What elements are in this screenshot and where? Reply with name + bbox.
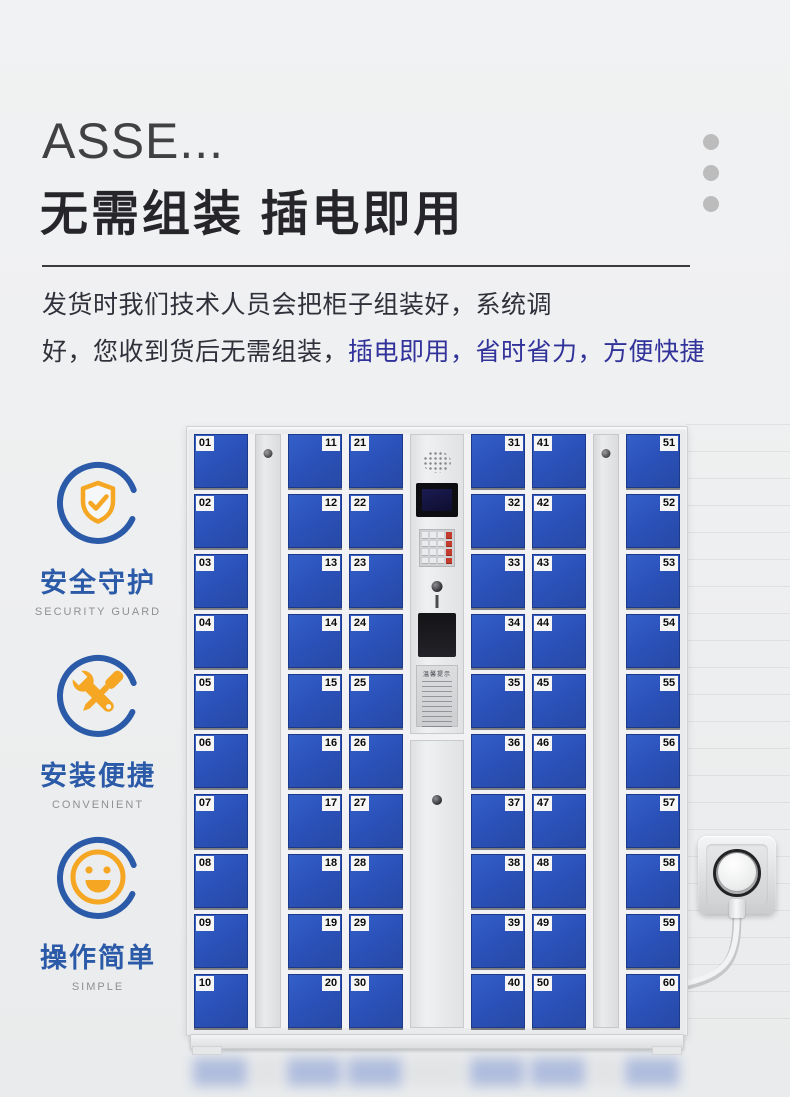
door-number-label: 40 [505,976,523,991]
keypad-key [446,532,452,539]
locker-cell: 38 [471,854,525,908]
door-number-label: 37 [505,796,523,811]
door-number-label: 36 [505,736,523,751]
feature-installation: 安装便捷 CONVENIENT [18,648,178,811]
locker-cell: 48 [532,854,586,908]
locker-cell: 10 [194,974,248,1028]
keypad-key [446,558,452,565]
door-number-label: 49 [534,916,552,931]
panel-lock-icon [432,581,443,592]
locker-cell: 23 [349,554,403,608]
door-column: 31323334353637383940 [471,434,525,1028]
dot [703,165,719,181]
dot [703,196,719,212]
locker-door-06: 06 [194,734,248,788]
locker-door-53: 53 [626,554,680,608]
sticker-text-lines [422,681,452,727]
locker-cell: 07 [194,794,248,848]
locker-door-49: 49 [532,914,586,968]
feature-label: 安装便捷 [18,754,178,793]
drop-slot [418,613,456,657]
headline-english: ASSE... [42,112,224,170]
door-number-label: 08 [196,856,214,871]
locker-door-29: 29 [349,914,403,968]
locker-cell: 56 [626,734,680,788]
locker-cell: 26 [349,734,403,788]
locker-cell: 49 [532,914,586,968]
locker-cell: 44 [532,614,586,668]
locker-door-09: 09 [194,914,248,968]
door-number-label: 48 [534,856,552,871]
locker-cell: 46 [532,734,586,788]
keypad [419,529,455,567]
control-column: 温馨提示 [410,434,464,1028]
locker-cell: 40 [471,974,525,1028]
control-lower-door [410,740,464,1028]
reflection-block [592,1058,618,1086]
locker-door-26: 26 [349,734,403,788]
locker-door-46: 46 [532,734,586,788]
locker-cell: 11 [288,434,342,488]
locker-door-17: 17 [288,794,342,848]
locker-cell: 18 [288,854,342,908]
door-number-label: 01 [196,436,214,451]
door-number-label: 51 [660,436,678,451]
locker-cell: 35 [471,674,525,728]
locker-cell: 01 [194,434,248,488]
locker-cell: 32 [471,494,525,548]
keypad-key [422,558,428,565]
door-number-label: 17 [322,796,340,811]
locker-cell: 30 [349,974,403,1028]
locker-cell: 24 [349,614,403,668]
keypad-key [438,549,444,556]
locker-door-55: 55 [626,674,680,728]
locker-door-37: 37 [471,794,525,848]
locker-door-14: 14 [288,614,342,668]
locker-door-20: 20 [288,974,342,1028]
door-number-label: 47 [534,796,552,811]
door-number-label: 06 [196,736,214,751]
feature-sublabel: CONVENIENT [18,799,178,811]
door-number-label: 29 [351,916,369,931]
locker-cell: 51 [626,434,680,488]
locker-cell: 20 [288,974,342,1028]
locker-door-01: 01 [194,434,248,488]
locker-door-50: 50 [532,974,586,1028]
power-plug-body [729,899,745,918]
locker-door-56: 56 [626,734,680,788]
locker-cell: 55 [626,674,680,728]
info-sticker: 温馨提示 [416,665,458,727]
door-number-label: 33 [505,556,523,571]
locker-door-33: 33 [471,554,525,608]
locker-door-04: 04 [194,614,248,668]
locker-cell: 58 [626,854,680,908]
door-number-label: 52 [660,496,678,511]
door-number-label: 31 [505,436,523,451]
feature-label: 操作简单 [18,936,178,975]
locker-door-38: 38 [471,854,525,908]
reflection-block [470,1058,524,1086]
locker-door-05: 05 [194,674,248,728]
hinge-strip [593,434,619,1028]
locker-door-48: 48 [532,854,586,908]
locker-cell: 33 [471,554,525,608]
locker-cell: 59 [626,914,680,968]
locker-door-32: 32 [471,494,525,548]
keypad-key [430,541,436,548]
reflection-block [254,1058,280,1086]
locker-door-25: 25 [349,674,403,728]
cabinet-foot-right [652,1046,682,1055]
door-number-label: 23 [351,556,369,571]
locker-door-23: 23 [349,554,403,608]
locker-door-12: 12 [288,494,342,548]
wrench-screwdriver-icon [50,648,146,744]
door-number-label: 42 [534,496,552,511]
door-number-label: 25 [351,676,369,691]
locker-cell: 21 [349,434,403,488]
reflection-block [287,1058,341,1086]
locker-cell: 42 [532,494,586,548]
door-number-label: 39 [505,916,523,931]
keypad-key [430,532,436,539]
locker-cell: 43 [532,554,586,608]
locker-cell: 19 [288,914,342,968]
door-number-label: 43 [534,556,552,571]
door-number-label: 41 [534,436,552,451]
keyhole-icon [432,795,442,805]
locker-door-44: 44 [532,614,586,668]
keypad-key [430,549,436,556]
keypad-key [446,541,452,548]
door-number-label: 14 [322,616,340,631]
reflection-block [531,1058,585,1086]
locker-door-16: 16 [288,734,342,788]
locker-door-08: 08 [194,854,248,908]
locker-cell: 06 [194,734,248,788]
locker-door-36: 36 [471,734,525,788]
locker-door-15: 15 [288,674,342,728]
door-number-label: 22 [351,496,369,511]
locker-door-19: 19 [288,914,342,968]
dot [703,134,719,150]
door-number-label: 59 [660,916,678,931]
door-number-label: 45 [534,676,552,691]
feature-sublabel: SIMPLE [18,981,178,993]
locker-door-28: 28 [349,854,403,908]
door-number-label: 19 [322,916,340,931]
description-paragraph: 发货时我们技术人员会把柜子组装好，系统调 好，您收到货后无需组装，插电即用，省时… [42,282,787,376]
keypad-key [438,541,444,548]
keypad-key [422,532,428,539]
locker-cell: 09 [194,914,248,968]
locker-cell: 02 [194,494,248,548]
locker-door-07: 07 [194,794,248,848]
locker-cell: 25 [349,674,403,728]
locker-door-34: 34 [471,614,525,668]
door-number-label: 13 [322,556,340,571]
keypad-key [446,549,452,556]
locker-door-42: 42 [532,494,586,548]
locker-cell: 53 [626,554,680,608]
door-number-label: 03 [196,556,214,571]
locker-door-02: 02 [194,494,248,548]
door-number-label: 57 [660,796,678,811]
locker-cell: 17 [288,794,342,848]
door-number-label: 56 [660,736,678,751]
feature-security: 安全守护 SECURITY GUARD [18,455,178,618]
door-number-label: 05 [196,676,214,691]
door-number-label: 04 [196,616,214,631]
ellipsis-dots-icon [703,134,719,212]
description-line2-plain: 好，您收到货后无需组装， [42,338,348,366]
locker-cell: 04 [194,614,248,668]
locker-door-43: 43 [532,554,586,608]
locker-door-39: 39 [471,914,525,968]
locker-cell: 31 [471,434,525,488]
display-screen [416,483,458,517]
locker-cell: 03 [194,554,248,608]
door-column: 51525354555657585960 [626,434,680,1028]
control-panel: 温馨提示 [410,434,464,734]
locker-door-45: 45 [532,674,586,728]
locker-cell: 34 [471,614,525,668]
locker-cell: 39 [471,914,525,968]
reflection-block [348,1058,402,1086]
door-number-label: 50 [534,976,552,991]
locker-door-57: 57 [626,794,680,848]
door-number-label: 26 [351,736,369,751]
locker-cell: 57 [626,794,680,848]
floor-reflection [186,1058,686,1086]
speaker-grille-icon [423,451,451,473]
panel-key-icon [436,595,439,608]
door-number-label: 21 [351,436,369,451]
headline-chinese: 无需组装 插电即用 [40,174,464,244]
locker-door-52: 52 [626,494,680,548]
locker-cell: 60 [626,974,680,1028]
locker-door-40: 40 [471,974,525,1028]
door-number-label: 12 [322,496,340,511]
door-number-label: 10 [196,976,214,991]
power-plug [718,853,756,891]
locker-cell: 13 [288,554,342,608]
locker-door-22: 22 [349,494,403,548]
locker-cell: 22 [349,494,403,548]
locker-cell: 36 [471,734,525,788]
hinge-strip [255,434,281,1028]
door-number-label: 55 [660,676,678,691]
locker-columns: 0102030405060708091011121314151617181920… [194,434,680,1028]
door-number-label: 07 [196,796,214,811]
reflection-block [193,1058,247,1086]
door-number-label: 16 [322,736,340,751]
locker-cell: 15 [288,674,342,728]
locker-door-60: 60 [626,974,680,1028]
door-number-label: 15 [322,676,340,691]
door-number-label: 38 [505,856,523,871]
locker-door-47: 47 [532,794,586,848]
keypad-key [422,541,428,548]
locker-door-59: 59 [626,914,680,968]
door-number-label: 44 [534,616,552,631]
locker-door-41: 41 [532,434,586,488]
door-number-label: 20 [322,976,340,991]
cabinet-foot-left [192,1046,222,1055]
door-number-label: 11 [322,436,340,451]
keypad-key [438,532,444,539]
locker-cell: 52 [626,494,680,548]
locker-door-35: 35 [471,674,525,728]
locker-cell: 12 [288,494,342,548]
door-number-label: 46 [534,736,552,751]
door-number-label: 60 [660,976,678,991]
feature-operation: 操作简单 SIMPLE [18,830,178,993]
locker-cell: 37 [471,794,525,848]
locker-cell: 16 [288,734,342,788]
door-column: 11121314151617181920 [288,434,342,1028]
smiley-icon [50,830,146,926]
locker-door-10: 10 [194,974,248,1028]
door-number-label: 27 [351,796,369,811]
locker-door-13: 13 [288,554,342,608]
door-number-label: 34 [505,616,523,631]
description-line1: 发货时我们技术人员会把柜子组装好，系统调 [42,291,552,319]
locker-door-58: 58 [626,854,680,908]
locker-door-03: 03 [194,554,248,608]
shield-check-icon [50,455,146,551]
reflection-block [625,1058,679,1086]
keypad-key [422,549,428,556]
locker-cabinet: 0102030405060708091011121314151617181920… [186,426,688,1036]
door-number-label: 18 [322,856,340,871]
feature-sublabel: SECURITY GUARD [18,606,178,618]
locker-door-18: 18 [288,854,342,908]
locker-door-51: 51 [626,434,680,488]
door-number-label: 09 [196,916,214,931]
door-column: 01020304050607080910 [194,434,248,1028]
description-line2-highlight: 插电即用，省时省力，方便快捷 [348,338,705,366]
strip-lock-icon [264,449,273,458]
wall-socket [698,836,776,914]
door-number-label: 24 [351,616,369,631]
door-column: 21222324252627282930 [349,434,403,1028]
reflection-block [409,1058,463,1086]
locker-cell: 28 [349,854,403,908]
locker-cell: 50 [532,974,586,1028]
keypad-key [438,558,444,565]
locker-door-31: 31 [471,434,525,488]
feature-label: 安全守护 [18,561,178,600]
locker-door-27: 27 [349,794,403,848]
sticker-title: 温馨提示 [417,669,457,678]
door-number-label: 53 [660,556,678,571]
door-number-label: 54 [660,616,678,631]
door-number-label: 28 [351,856,369,871]
door-number-label: 58 [660,856,678,871]
strip-lock-icon [602,449,611,458]
locker-cell: 08 [194,854,248,908]
locker-cell: 54 [626,614,680,668]
locker-cell: 29 [349,914,403,968]
locker-cell: 14 [288,614,342,668]
locker-door-11: 11 [288,434,342,488]
door-number-label: 02 [196,496,214,511]
locker-cell: 41 [532,434,586,488]
door-number-label: 35 [505,676,523,691]
door-number-label: 32 [505,496,523,511]
locker-door-30: 30 [349,974,403,1028]
locker-door-54: 54 [626,614,680,668]
locker-cell: 45 [532,674,586,728]
locker-cell: 27 [349,794,403,848]
locker-cell: 47 [532,794,586,848]
locker-cell: 05 [194,674,248,728]
locker-door-24: 24 [349,614,403,668]
keypad-key [430,558,436,565]
divider-line [42,265,690,267]
screen-glass [422,489,452,511]
locker-door-21: 21 [349,434,403,488]
door-number-label: 30 [351,976,369,991]
cabinet-base [190,1034,684,1049]
door-column: 41424344454647484950 [532,434,586,1028]
